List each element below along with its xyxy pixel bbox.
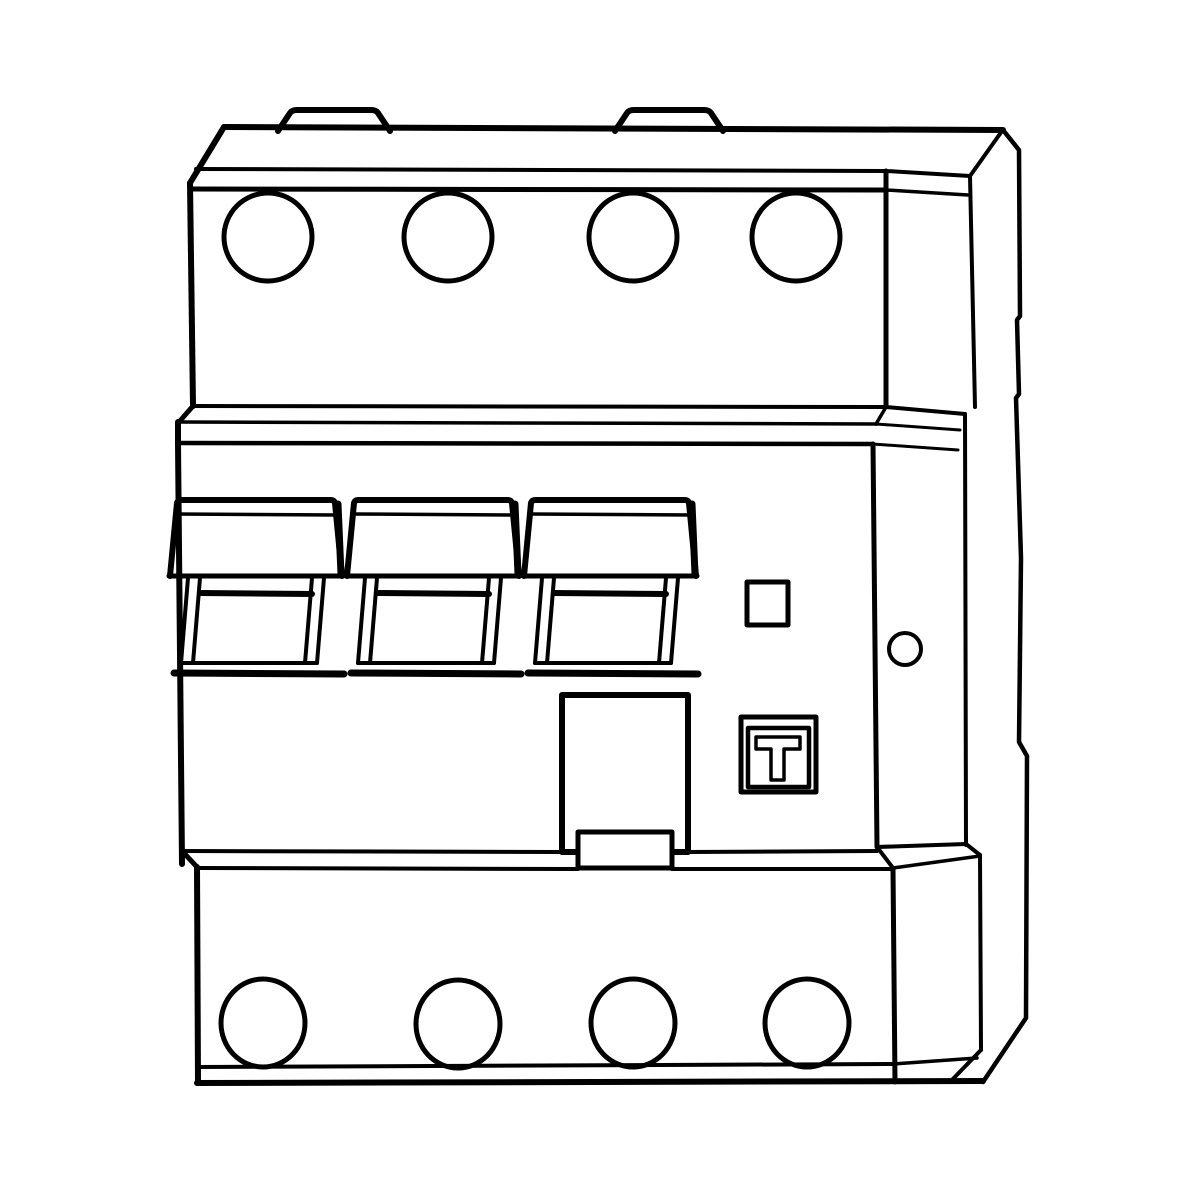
toggle-handle-1-cap [170,500,342,576]
toggle-handle-2-bottom [351,673,521,674]
bottom-side-right-edge [980,855,981,1050]
toggle-handle-2-cap [347,500,519,576]
terminal-hole-bottom-2 [416,980,500,1068]
center-plate-clip [578,832,672,868]
mid-side-bottom-chamfer [966,844,980,855]
mid-bottom-front-line-a [197,868,578,869]
top-side-back-edge [970,131,1002,176]
terminal-hole-top-1 [224,193,312,281]
mid-block-right-front-edge [873,444,877,847]
toggle-handle-1-rail-right-outer [317,578,324,663]
indicator-window [747,582,788,625]
bottom-side-top-edge [893,856,980,868]
toggle-handle-2-crossbar [377,593,489,594]
toggle-handle-2-rail-left-outer [358,578,365,663]
top-bevel-line-upper [196,169,886,171]
mid-bottom-right-chamfer [877,847,893,868]
terminal-hole-bottom-4 [765,979,849,1067]
toggle-handle-2-rail-right-inner [482,578,489,663]
toggle-handle-3-rail-left-outer [535,578,542,663]
terminal-hole-bottom-3 [591,979,675,1067]
center-plate [562,695,688,852]
top-bevel-line-lower [191,189,886,190]
din-rail-plate-edge [983,130,1027,1082]
step-band-side-front [873,444,958,450]
step-band-side-mid [876,424,960,430]
drawing-svg [0,0,1200,1200]
step-band-side-back [886,407,965,414]
mid-side-bottom-edge [877,844,966,847]
toggle-handle-1-bottom [174,673,344,674]
terminal-hole-bottom-1 [221,979,305,1067]
toggle-handle-3-cap [524,500,696,576]
bottom-side-chamfer [950,1050,981,1082]
toggle-handle-2-rail-right-outer [494,578,501,663]
circuit-breaker-technical-drawing [0,0,1200,1200]
toggle-handle-3-rail-right-inner [659,578,666,663]
top-left-chamfer [190,127,224,183]
top-side-bevel-upper [886,171,970,176]
bottom-block-left-edge [197,867,198,1083]
step-band-mid-line [179,422,877,424]
toggle-handle-1-cap-line [175,514,337,515]
terminal-hole-top-3 [589,193,677,281]
step-band-back-line [193,406,886,407]
bottom-block-right-front-edge [893,869,895,1082]
toggle-handle-3-crossbar [554,593,666,594]
toggle-handle-1-rail-right-inner [305,578,312,663]
mid-bottom-back-line-b [688,851,877,852]
top-block-left-edge [190,183,193,406]
toggle-handle-3-bottom [528,673,698,674]
toggle-handle-2-cap-line [352,514,514,515]
terminal-hole-top-2 [404,193,492,281]
side-seal-hole [889,633,921,665]
terminal-hole-top-4 [752,193,840,281]
bottom-bevel-side-line [893,1058,977,1064]
toggle-handle-3-cap-line [529,514,691,515]
step-band-right-chamfer [876,407,886,424]
step-band-front-line [178,443,873,444]
bottom-edge [197,1081,983,1083]
toggle-handle-3-rail-right-outer [671,578,678,663]
mid-side-right-edge [965,414,966,845]
top-side-bevel-lower [886,190,968,195]
step-band-left-chamfer [179,406,193,422]
toggle-handle-1-crossbar [200,593,312,594]
mid-bottom-back-line-a [182,851,562,852]
top-side-right-edge [970,176,975,407]
